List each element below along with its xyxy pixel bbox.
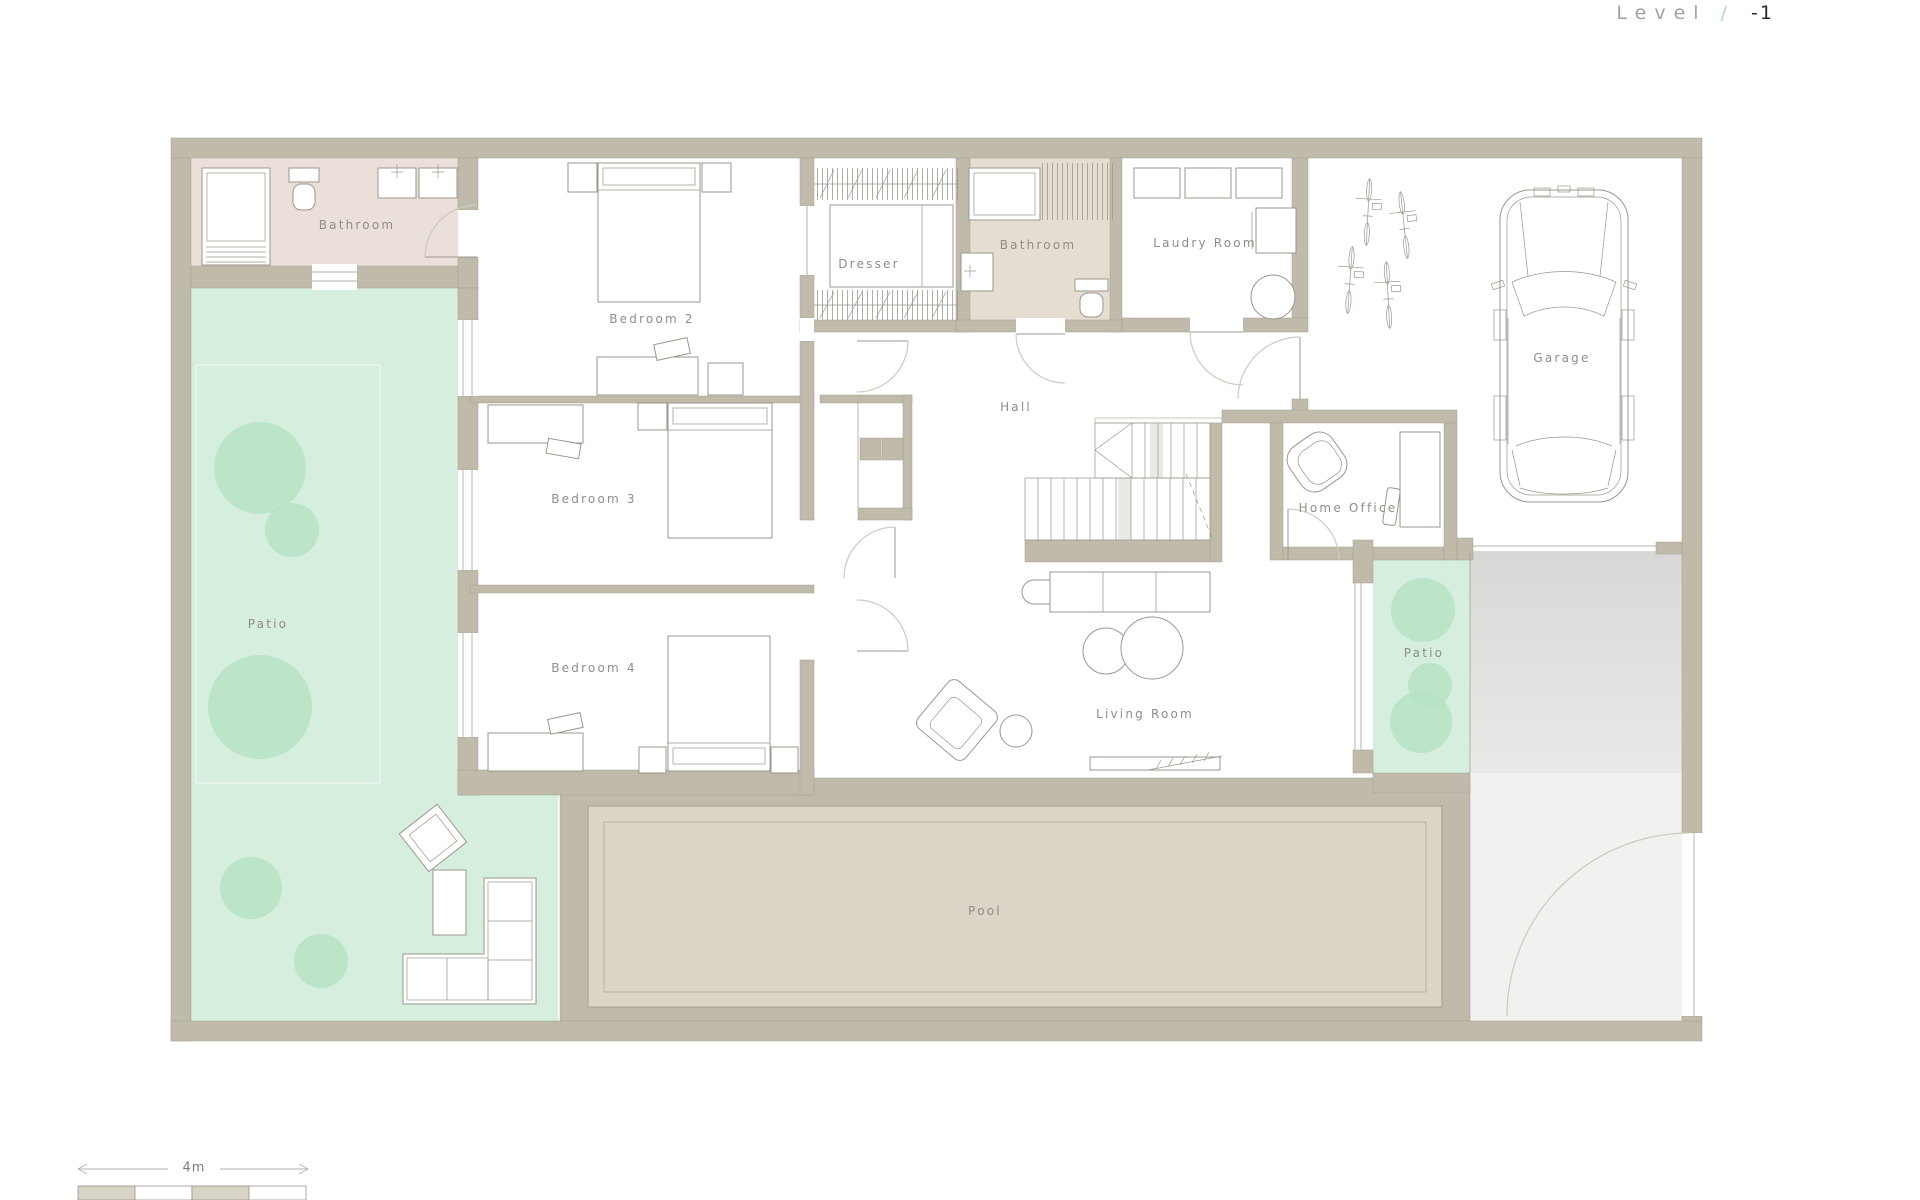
- room-label-pool: Pool: [968, 904, 1002, 918]
- room-label-bedroom-4: Bedroom 4: [551, 661, 637, 675]
- desk: [597, 357, 698, 395]
- round-table: [1000, 715, 1032, 747]
- dresser-furniture: [814, 168, 958, 320]
- room-label-laundry: Laudry Room: [1153, 236, 1256, 250]
- room-label-dresser: Dresser: [838, 257, 900, 271]
- desk: [488, 405, 583, 443]
- room-label-bathroom-upper-left: Bathroom: [319, 218, 396, 232]
- room-label-bathroom-center: Bathroom: [1000, 238, 1077, 252]
- level-word: Level: [1616, 2, 1706, 24]
- room-label-bedroom-3: Bedroom 3: [551, 492, 637, 506]
- cabinet: [1236, 168, 1282, 198]
- washer: [1256, 208, 1296, 253]
- tv-console: [1090, 757, 1220, 770]
- shower: [969, 168, 1040, 220]
- sun-lounger: [433, 870, 466, 935]
- level-number: -1: [1751, 2, 1774, 24]
- pool-area: [560, 778, 1470, 1021]
- sliding-door: [312, 264, 357, 290]
- nightstand: [702, 163, 731, 192]
- scale-label: 4m: [179, 1161, 210, 1176]
- tree-icon: [220, 857, 282, 919]
- nightstand: [638, 403, 667, 430]
- window: [458, 633, 478, 737]
- sink: [961, 253, 993, 291]
- room-label-living-room: Living Room: [1096, 707, 1194, 721]
- window: [458, 470, 478, 570]
- room-label-hall: Hall: [1000, 400, 1032, 414]
- tree-icon: [1391, 578, 1455, 642]
- nightstand: [639, 747, 666, 773]
- page-title: Level / -1: [1616, 2, 1774, 24]
- bed: [668, 636, 770, 771]
- level-separator: /: [1721, 2, 1729, 24]
- tree-icon: [208, 655, 312, 759]
- window: [458, 320, 478, 396]
- nightstand: [568, 163, 597, 192]
- driveway-upper: [1470, 553, 1682, 773]
- bench: [1042, 163, 1115, 220]
- coffee-table: [1121, 617, 1183, 679]
- dresser-opening: [800, 206, 814, 275]
- dresser-island: [830, 205, 953, 287]
- pool-basin: [588, 806, 1442, 1007]
- tree-icon: [294, 934, 348, 988]
- room-label-bedroom-2: Bedroom 2: [609, 312, 695, 326]
- laundry-basket: [1251, 275, 1295, 319]
- bed: [668, 403, 772, 538]
- tree-icon: [1390, 691, 1452, 753]
- tree-icon: [214, 422, 306, 514]
- cabinet: [1185, 168, 1231, 198]
- cabinet: [1134, 168, 1180, 198]
- floor-plan-drawing: [0, 0, 1920, 1200]
- room-label-garage: Garage: [1533, 351, 1590, 365]
- room-label-home-office: Home Office: [1299, 501, 1398, 515]
- car-icon: [1491, 186, 1636, 502]
- desk: [1400, 432, 1440, 527]
- shower: [202, 168, 270, 265]
- toilet: [289, 168, 319, 210]
- room-label-patio-right: Patio: [1404, 646, 1444, 660]
- bed: [598, 163, 700, 302]
- nightstand: [771, 747, 798, 773]
- closet: [708, 363, 743, 395]
- floor-plan-page: Level / -1 Bathroom Bedroom 2 Dresser Ba…: [0, 0, 1920, 1200]
- driveway-lower: [1470, 773, 1682, 1021]
- desk: [488, 733, 583, 771]
- sofa: [1050, 572, 1210, 612]
- room-label-patio-left: Patio: [248, 617, 288, 631]
- tree-icon: [265, 503, 319, 557]
